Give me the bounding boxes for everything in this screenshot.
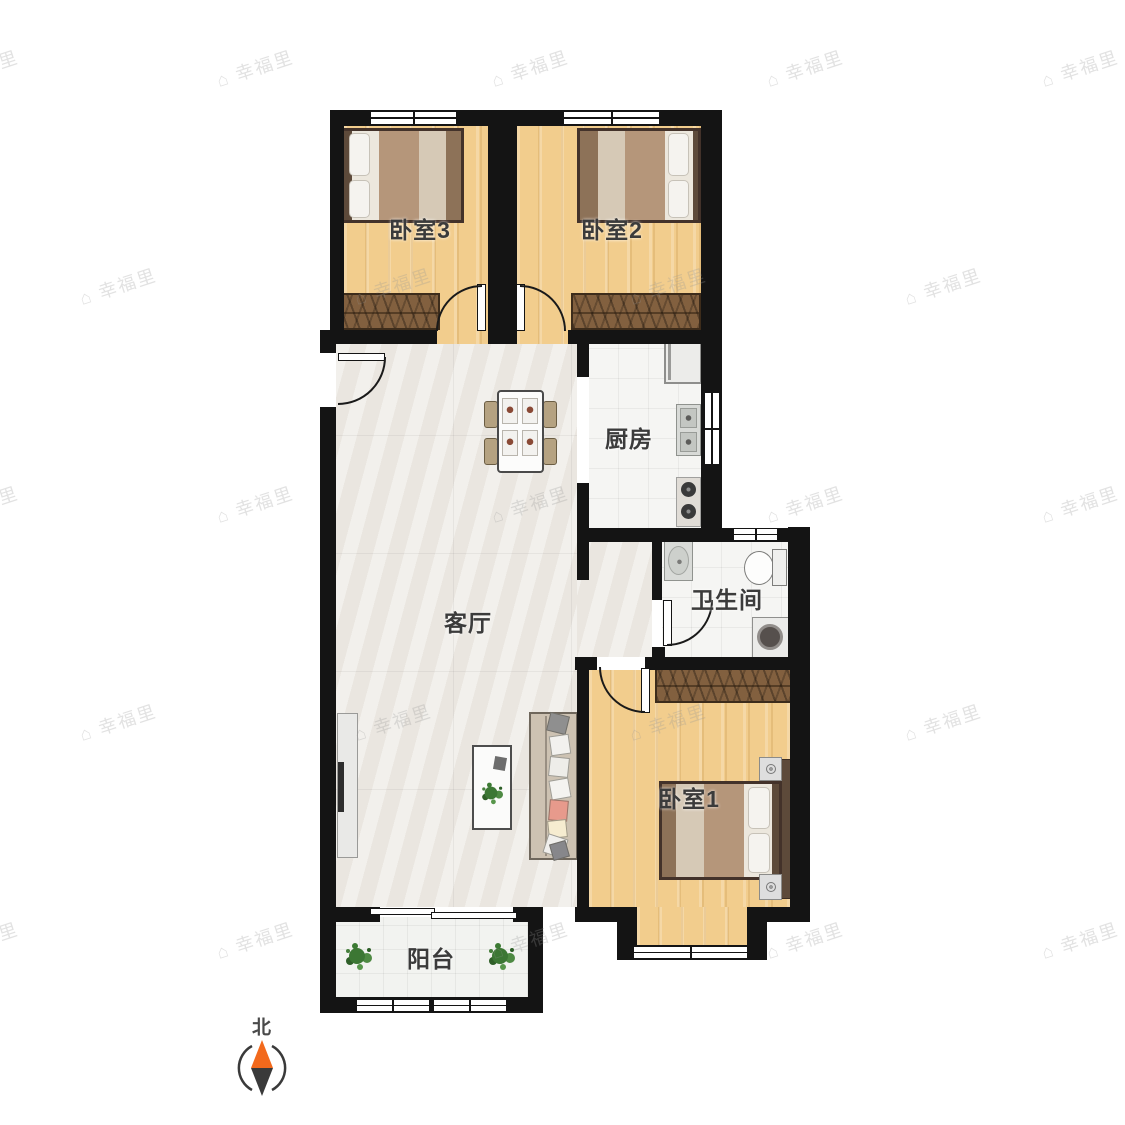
compass-north-label: 北 [252,1013,272,1040]
watermark-stamp: ⌂ 幸福里 [901,697,985,746]
place-setting [502,398,518,424]
watermark-stamp: ⌂ 幸福里 [1038,479,1122,528]
bay-window [633,946,748,959]
sofa-seat-line [545,716,547,856]
watermark-stamp: ⌂ 幸福里 [76,261,160,310]
plant-icon [349,948,365,964]
window [370,111,457,125]
window [356,999,430,1012]
pillow [349,133,370,176]
room-label-bathroom: 卫生间 [691,581,763,615]
toilet-bowl [744,551,774,585]
wall-segment [568,330,720,344]
dining-chair [543,401,557,428]
door-bedroom3 [477,284,486,331]
pillow [748,833,770,873]
wall-segment [488,330,517,344]
entry-door [338,353,385,361]
compass-icon [230,1038,294,1100]
bathroom-sink-basin [668,546,689,575]
washing-machine-drum [757,624,783,650]
watermark-stamp: ⌂ 幸福里 [488,43,572,92]
wall-segment [790,670,810,922]
dining-chair [543,438,557,465]
wall-segment [577,338,589,377]
watermark-stamp: ⌂ 幸福里 [213,43,297,92]
room-label-balcony: 阳台 [407,940,455,974]
watermark-stamp: ⌂ 幸福里 [901,261,985,310]
watermark-stamp: ⌂ 幸福里 [763,479,847,528]
pillow [668,180,689,218]
plant-icon [485,787,498,800]
nightstand [759,874,782,900]
pillow [668,133,689,176]
watermark-stamp: ⌂ 幸福里 [0,915,22,964]
pillow [349,180,370,218]
dining-chair [484,401,498,428]
place-setting [522,398,538,424]
watermark-stamp: ⌂ 幸福里 [763,43,847,92]
room-label-bedroom3: 卧室3 [389,211,451,245]
door-bedroom1 [641,668,650,713]
watermark-stamp: ⌂ 幸福里 [213,915,297,964]
sofa-pillow [548,777,571,800]
wardrobe-bedroom2 [571,293,701,330]
stove-burner [681,504,696,519]
pillow [748,787,770,829]
door-bedroom2 [516,284,525,331]
sofa-pillow [548,756,570,778]
room-label-bedroom1: 卧室1 [658,780,720,814]
watermark-stamp: ⌂ 幸福里 [76,697,160,746]
sofa-pillow [549,734,572,757]
nightstand [759,757,782,781]
wall-segment [652,542,662,600]
wall-segment [577,657,589,922]
place-setting [522,430,538,456]
wardrobe-bedroom3 [333,293,440,330]
fridge-handle [668,344,671,380]
wall-segment [788,527,810,670]
watermark-stamp: ⌂ 幸福里 [0,43,22,92]
toilet-tank [772,549,787,586]
stove-burner [681,482,696,497]
watermark-stamp: ⌂ 幸福里 [1038,43,1122,92]
bedroom1-bay-floor [637,907,747,945]
door-bathroom [663,600,672,646]
window [733,528,778,541]
floor-plan: 卧室3 卧室2 厨房 卫生间 客厅 卧室1 阳台 北 ⌂ 幸福里⌂ 幸福里⌂ 幸… [0,0,1125,1125]
window [704,392,720,465]
wall-segment [330,110,344,344]
wall-segment [320,997,543,1013]
room-label-living: 客厅 [444,604,492,638]
wall-segment [645,657,810,670]
wardrobe-bedroom1 [655,667,792,703]
sliding-door-panel [370,908,435,915]
sliding-door-panel [431,912,517,919]
wall-segment [320,330,437,344]
window [563,111,660,125]
wall-segment [747,907,767,960]
room-label-kitchen: 厨房 [605,420,653,454]
wall-segment [701,110,722,542]
tv [338,762,344,812]
wall-segment [488,110,517,344]
watermark-stamp: ⌂ 幸福里 [213,479,297,528]
sink-basin [680,408,697,428]
watermark-stamp: ⌂ 幸福里 [0,479,22,528]
sink-basin [680,432,697,452]
watermark-stamp: ⌂ 幸福里 [1038,915,1122,964]
window [433,999,507,1012]
watermark-stamp: ⌂ 幸福里 [763,915,847,964]
wall-segment [767,907,810,922]
coffee-table-book [493,756,507,771]
wall-segment [320,330,336,353]
place-setting [502,430,518,456]
plant-icon [492,948,508,964]
dining-chair [484,438,498,465]
room-label-bedroom2: 卧室2 [581,211,643,245]
